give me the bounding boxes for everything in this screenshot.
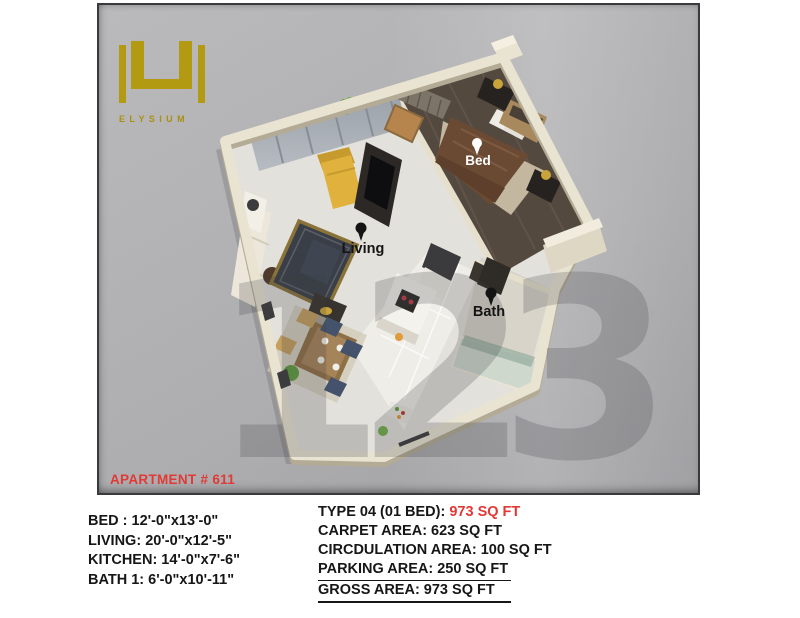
- spec-type-value: 973 SQ FT: [449, 504, 520, 520]
- spec-bed: BED : 12'-0"x13'-0": [88, 512, 240, 532]
- watermark: 123: [211, 225, 654, 493]
- spec-type-label: TYPE 04 (01 BED):: [318, 504, 449, 520]
- room-dimensions-list: BED : 12'-0"x13'-0" LIVING: 20'-0"x12'-5…: [88, 512, 240, 590]
- spec-carpet-area: CARPET AREA: 623 SQ FT: [318, 522, 552, 541]
- spec-gross-area: GROSS AREA: 973 SQ FT: [318, 580, 511, 603]
- area-summary-list: TYPE 04 (01 BED): 973 SQ FT CARPET AREA:…: [318, 503, 552, 603]
- spec-type-line: TYPE 04 (01 BED): 973 SQ FT: [318, 503, 552, 522]
- bust-sculpture: [247, 199, 259, 211]
- spec-living: LIVING: 20'-0"x12'-5": [88, 532, 240, 552]
- brand-mark-icon: [119, 41, 205, 105]
- room-label-bed: Bed: [465, 153, 491, 168]
- spec-gross-area-line: GROSS AREA: 973 SQ FT: [318, 579, 552, 603]
- lamp: [493, 79, 503, 89]
- room-label-bath: Bath: [473, 304, 505, 320]
- spec-parking-area: PARKING AREA: 250 SQ FT: [318, 560, 552, 579]
- brand-name: ELYSIUM: [119, 114, 215, 124]
- elysium-logo: ELYSIUM: [119, 41, 215, 124]
- apartment-number-label: APARTMENT # 611: [110, 472, 235, 487]
- lamp: [541, 170, 551, 180]
- spec-circulation-area: CIRCDULATION AREA: 100 SQ FT: [318, 541, 552, 560]
- floorplan-photo-frame: 123 Bed Living Bath: [97, 3, 700, 495]
- room-label-living: Living: [342, 241, 385, 257]
- listing-page: 123 Bed Living Bath: [0, 0, 800, 618]
- spec-kitchen: KITCHEN: 14'-0"x7'-6": [88, 551, 240, 571]
- spec-bath: BATH 1: 6'-0"x10'-11": [88, 571, 240, 591]
